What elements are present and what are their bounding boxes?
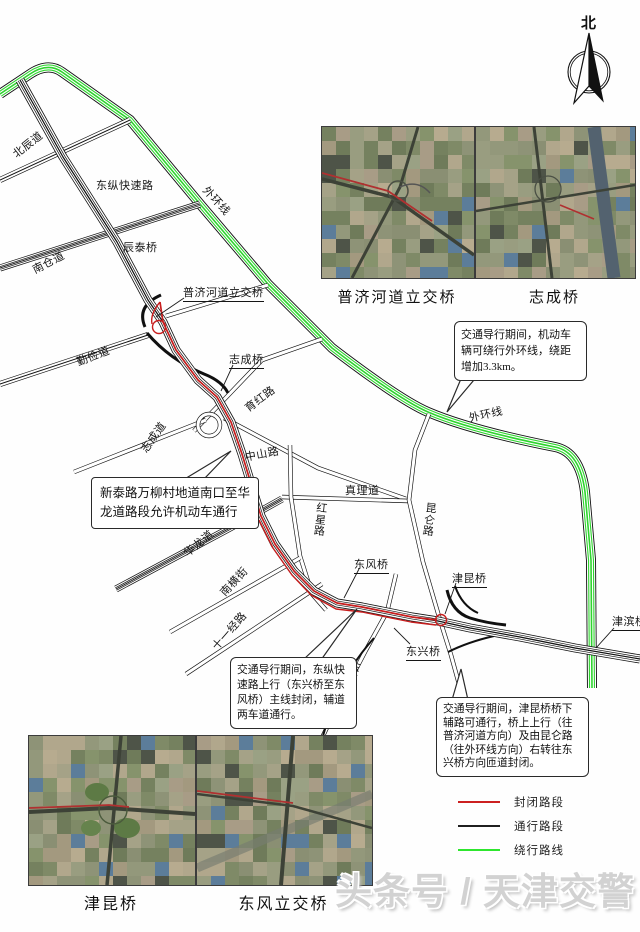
satellite-image-jinkunqiao: [28, 735, 196, 886]
legend-label-detour: 绕行路线: [514, 842, 564, 858]
legend-line-closed: [458, 801, 500, 803]
satellite-image-dongfeng: [196, 735, 373, 886]
satellite-image-pujihedao: [321, 126, 475, 279]
callout-dongzong-closure: 交通导行期间，东纵快速路上行（东兴桥至东风桥）主线封闭，辅道两车道通行。: [230, 657, 357, 729]
legend-line-open: [458, 825, 500, 827]
callout-jinkun-bridge: 交通导行期间，津昆桥桥下辅路可通行，桥上上行（往普济河道方向）及由昆仑路（往外环…: [436, 697, 589, 777]
bridge-label-zhichengqiao: 志成桥: [229, 351, 264, 369]
road-label-zhenlidao: 真理道: [345, 482, 380, 498]
compass-icon: [568, 33, 610, 103]
inset-caption-pujihedao: 普济河道立交桥: [321, 286, 473, 307]
bridge-label-pujihedao: 普济河道立交桥: [183, 284, 264, 302]
callout-xintai-road: 新泰路万柳村地道南口至华龙道路段允许机动车通行: [91, 477, 259, 529]
legend-row-detour: 绕行路线: [458, 842, 564, 858]
legend-line-detour: [458, 849, 500, 851]
inset-caption-jinkunqiao: 津昆桥: [28, 890, 194, 914]
watermark-toutiao-tianjin-police: 头条号 / 天津交警: [335, 872, 635, 913]
legend-row-closed: 封闭路段: [458, 794, 564, 810]
callout-outer-ring-detour: 交通导行期间，机动车辆可绕行外环线，绕距增加3.3km。: [454, 321, 587, 381]
legend-label-closed: 封闭路段: [514, 794, 564, 810]
legend: 封闭路段 通行路段 绕行路线: [458, 794, 564, 866]
north-label: 北: [581, 12, 596, 33]
traffic-detour-map: 北 北辰道 东纵快速路 外环线 辰泰桥 南仓道 普济河道立交桥 勤俭道 志成桥 …: [0, 0, 640, 932]
legend-label-open: 通行路段: [514, 818, 564, 834]
bridge-label-dongxingqiao: 东兴桥: [406, 643, 441, 661]
bridge-label-jinbinqiao: 津滨桥: [612, 613, 640, 631]
satellite-image-zhichengqiao: [475, 126, 636, 279]
inset-caption-zhichengqiao: 志成桥: [475, 286, 634, 307]
road-label-chentaiqiao: 辰泰桥: [123, 239, 158, 255]
road-label-dongzong: 东纵快速路: [96, 177, 154, 193]
bridge-label-dongfengqiao: 东风桥: [354, 556, 389, 574]
bridge-label-jinkunqiao: 津昆桥: [452, 570, 487, 588]
legend-row-open: 通行路段: [458, 818, 564, 834]
